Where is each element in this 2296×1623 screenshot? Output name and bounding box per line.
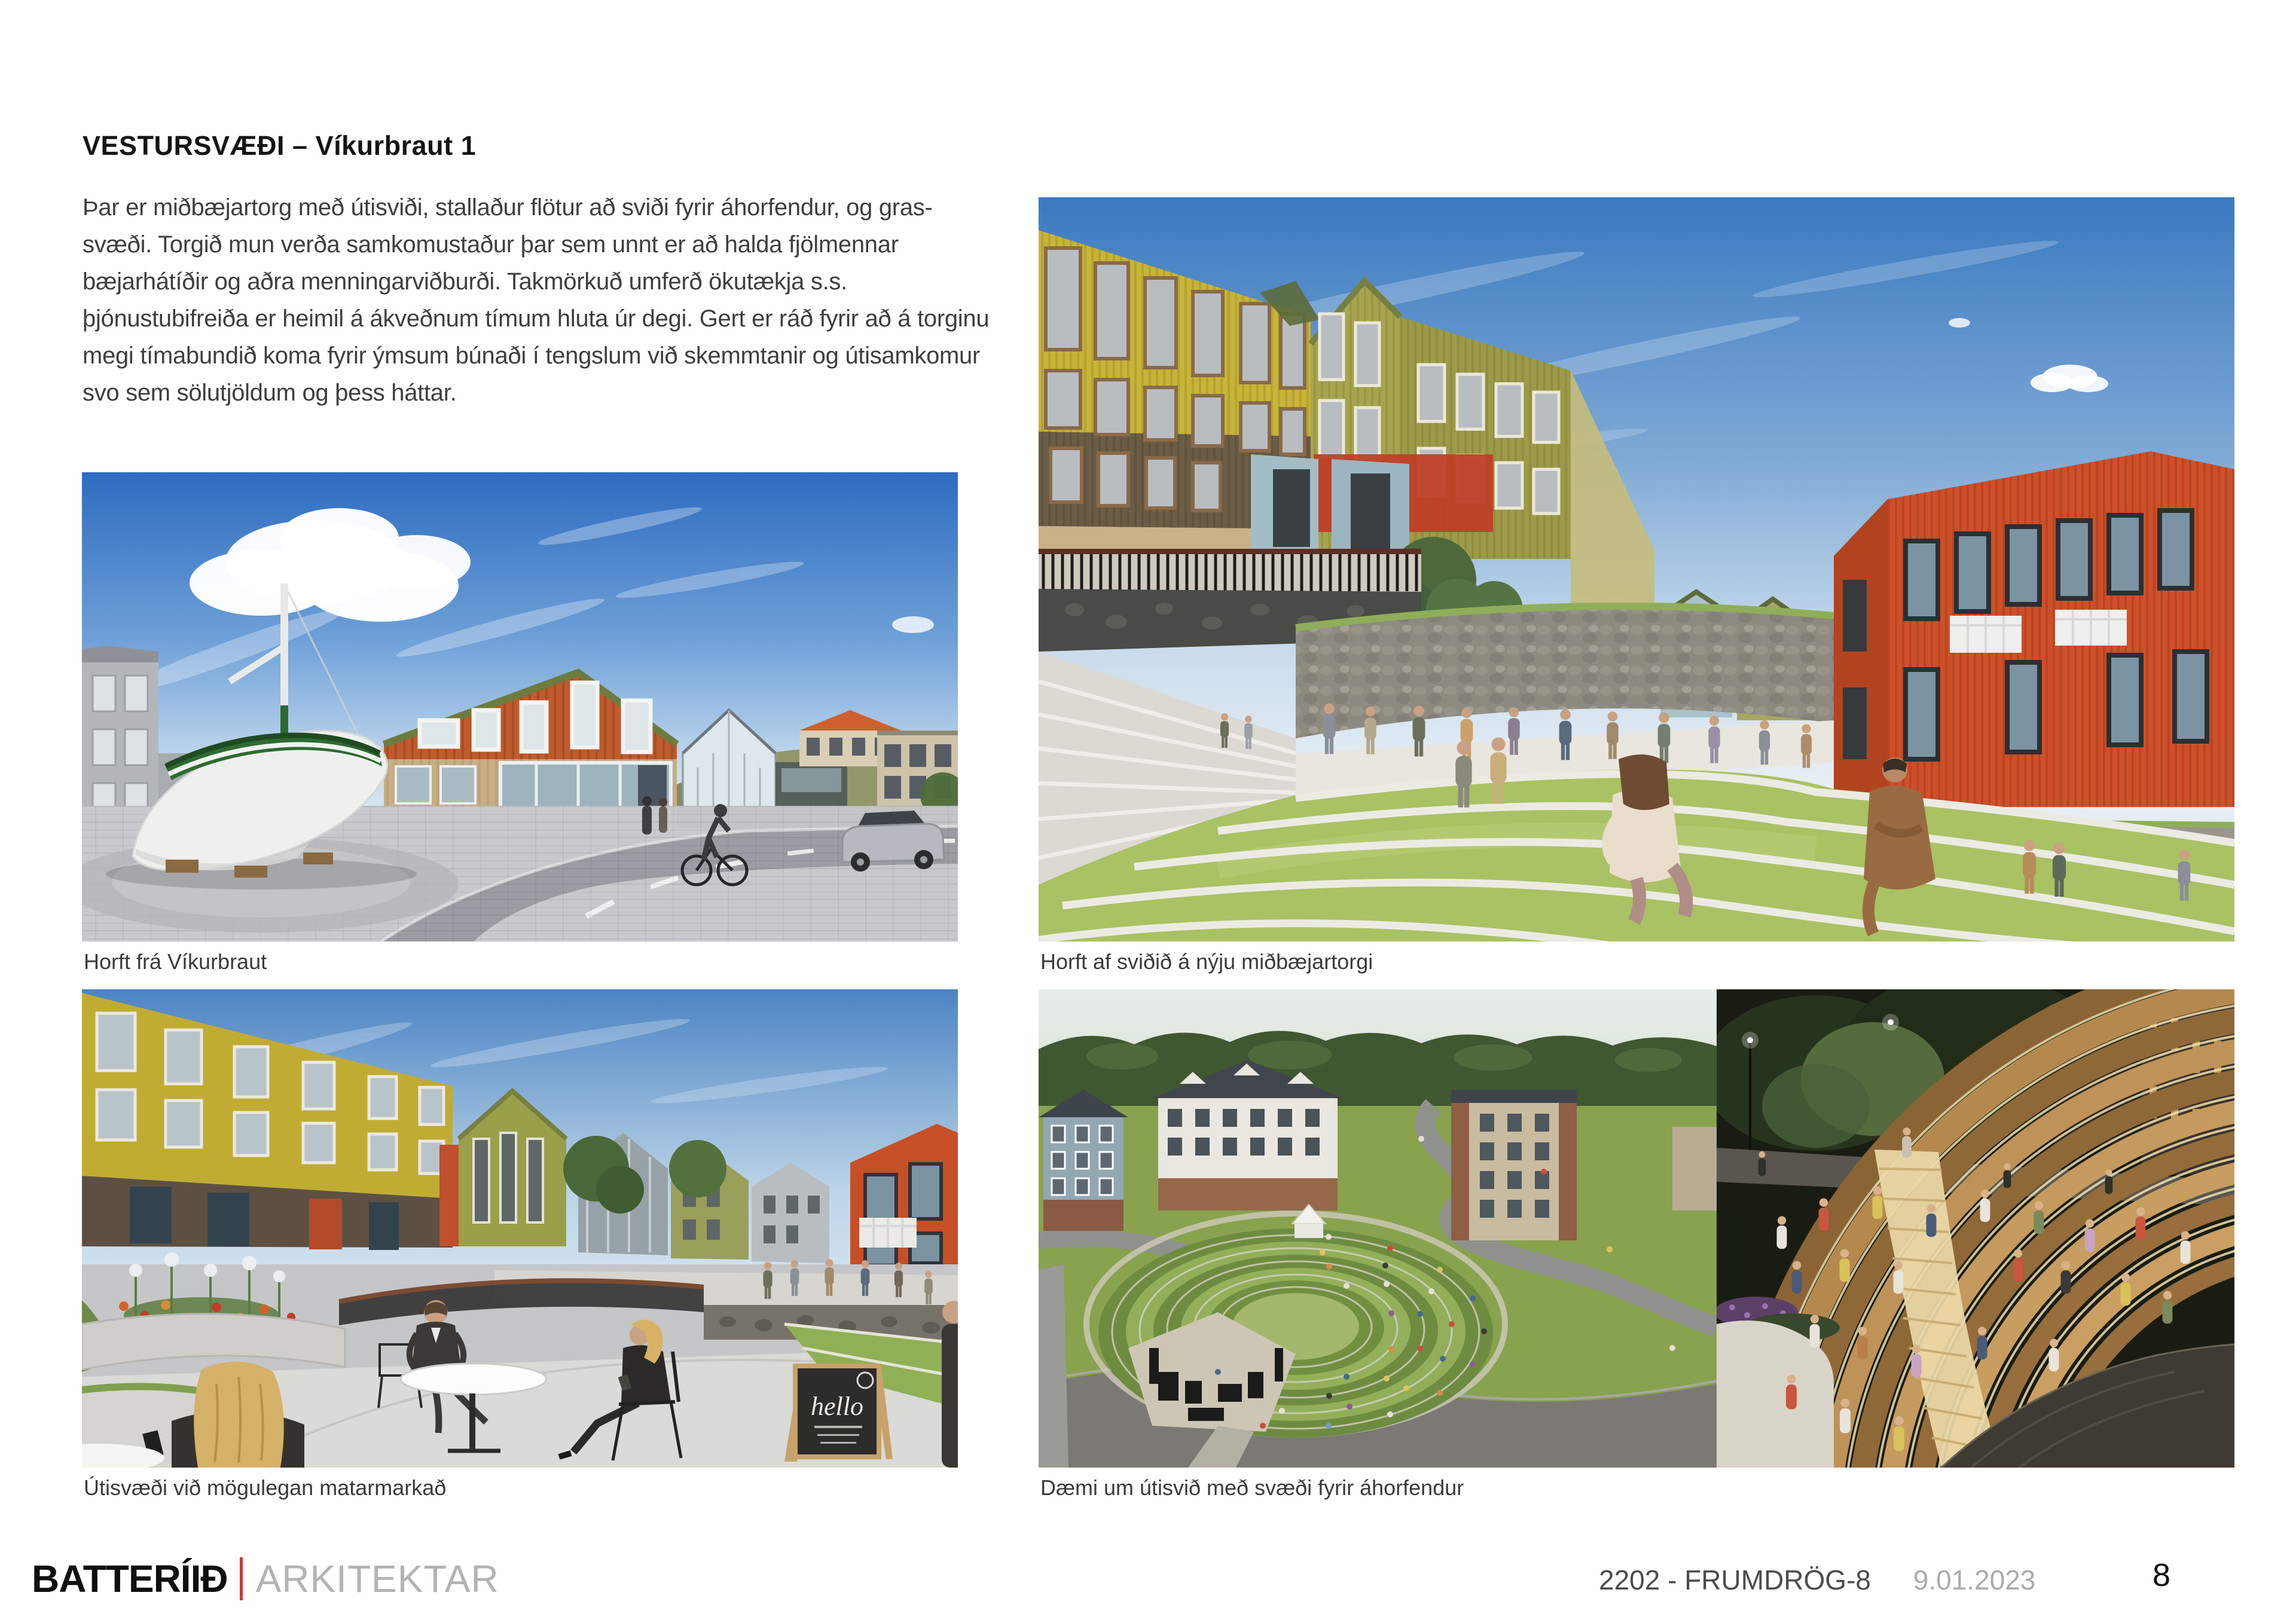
corner-building-edge <box>1039 1264 1068 1468</box>
caption-stage-view: Horft af sviðið á nýju miðbæjartorgi <box>1040 949 1373 974</box>
street-view-rendering <box>82 472 958 942</box>
figure-stage-view <box>1039 197 2234 942</box>
amphitheater-examples-photos <box>1039 989 2234 1468</box>
market-plaza-rendering: hello <box>82 989 958 1468</box>
figure-amphitheater-examples <box>1039 989 2234 1468</box>
white-wall-flowers <box>1714 1297 1840 1468</box>
figure-street-view <box>82 472 958 942</box>
caption-street-view: Horft frá Víkurbraut <box>84 949 267 974</box>
logo-secondary-text: ARKITEKTAR <box>256 1557 499 1601</box>
logo-separator-bar <box>240 1557 243 1600</box>
stage-view-rendering <box>1039 197 2234 942</box>
chalkboard-sign: hello <box>784 1366 893 1462</box>
footer-project-info: 2202 - FRUMDRÖG-8 9.01.2023 <box>1599 1564 2035 1596</box>
figure-market-plaza: hello <box>82 989 958 1468</box>
document-date: 9.01.2023 <box>1913 1564 2036 1596</box>
sign-text: hello <box>811 1392 863 1421</box>
aerial-photo <box>1039 989 1717 1468</box>
project-label: 2202 - FRUMDRÖG-8 <box>1599 1564 1871 1596</box>
body-paragraph: Þar er miðbæjartorg með útisviði, stalla… <box>83 189 997 411</box>
company-logo: BATTERÍIÐ ARKITEKTAR <box>32 1555 499 1602</box>
caption-amphitheater-examples: Dæmi um útisvið með svæði fyrir áhorfend… <box>1040 1475 1464 1500</box>
caption-market-plaza: Útisvæði við mögulegan matarmarkað <box>84 1475 446 1500</box>
logo-primary-text: BATTERÍIÐ <box>32 1557 228 1601</box>
page-number: 8 <box>2152 1557 2170 1594</box>
evening-photo <box>1702 989 2234 1468</box>
page-title: VESTURSVÆÐI – Víkurbraut 1 <box>83 130 476 161</box>
document-page: VESTURSVÆÐI – Víkurbraut 1 Þar er miðbæj… <box>0 0 2296 1623</box>
